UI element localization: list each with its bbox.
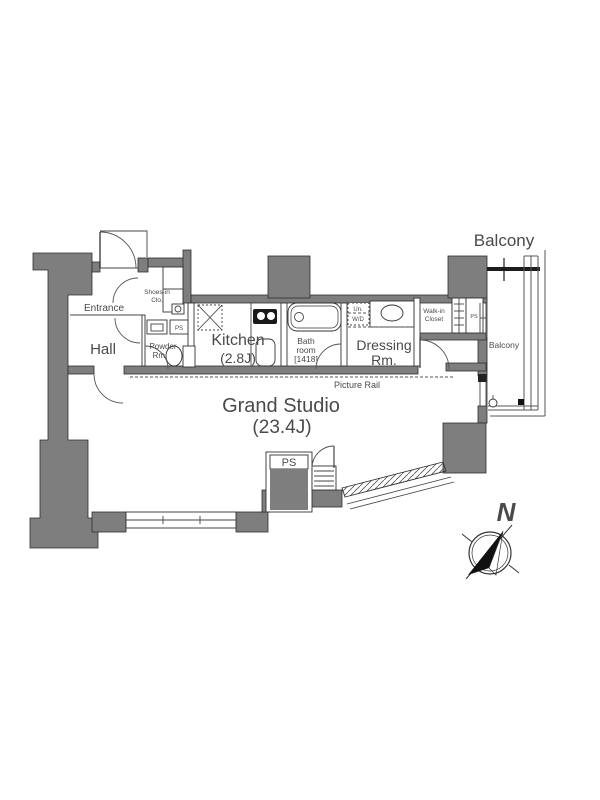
- toilet-tank-icon: [183, 346, 195, 367]
- stove-burner-right: [267, 312, 275, 320]
- right-wall-lower-stub: [478, 406, 487, 423]
- shoes-closet-label-1: Shoes-in: [144, 289, 170, 296]
- powder-room-label-1: Powder: [149, 342, 176, 351]
- water-heater-box: [172, 304, 184, 314]
- bottom-window: [126, 512, 236, 528]
- vanity-basin-icon: [381, 305, 403, 321]
- washer-dryer-label-1: Un.: [353, 307, 363, 313]
- bath-room-label-3: [1418]: [294, 354, 318, 364]
- kitchen-label-1: Kitchen: [211, 332, 264, 349]
- hall-label: Hall: [90, 341, 116, 358]
- bathtub-outer: [288, 303, 341, 331]
- powder-room-label-2: Rm.: [153, 351, 168, 360]
- dressing-room-label-2: Rm.: [371, 352, 397, 368]
- bottom-wall-right: [236, 512, 268, 532]
- balcony-title: Balcony: [474, 231, 535, 250]
- entrance-right-stub: [138, 258, 148, 272]
- hall-door-left-stub: [68, 366, 94, 374]
- picture-rail-label: Picture Rail: [334, 380, 380, 390]
- studio-label-1: Grand Studio: [222, 395, 340, 417]
- walkin-closet-bottom-wall: [418, 333, 486, 340]
- walkin-ps-label: PS: [470, 314, 478, 320]
- right-top-pillar: [448, 256, 487, 298]
- entrance-left-stub: [92, 262, 100, 272]
- compass-north-label: N: [497, 497, 517, 527]
- floor-plan-drawing: Balcony Entrance Shoes-in Clo. Hall Powd…: [0, 0, 600, 800]
- studio-label-2: (23.4J): [252, 417, 311, 438]
- balcony-drain-icon: [489, 399, 497, 407]
- corridor-top-wall: [191, 295, 487, 303]
- dressing-closet-wall: [414, 298, 420, 366]
- kitchen-label-2: (2.8J): [220, 350, 256, 366]
- powder-ps-label: PS: [175, 326, 183, 332]
- stove-burner-left: [257, 312, 265, 320]
- walkin-closet-label-1: Walk-in: [423, 308, 445, 315]
- walkin-closet-label-2: Closet: [425, 316, 444, 323]
- bottom-right-pillar: [443, 423, 486, 473]
- shoes-closet-label-2: Clo.: [151, 297, 163, 304]
- hall-powder-wall: [142, 315, 145, 366]
- entrance-label: Entrance: [84, 303, 124, 314]
- dressing-room-label-1: Dressing: [356, 337, 411, 353]
- entrance-vertical-wall: [183, 250, 191, 303]
- bottom-wall-left: [92, 512, 126, 532]
- bottom-ps-label: PS: [282, 457, 297, 469]
- right-wall-dark-pier: [478, 374, 487, 382]
- bath-dressing-wall: [341, 303, 347, 366]
- studio-top-right-stub: [446, 363, 486, 371]
- washer-dryer-label-2: W/D: [352, 317, 364, 323]
- mid-top-pillar: [268, 256, 310, 298]
- walk-in-closet-area: [452, 298, 483, 333]
- balcony-downpipe-icon: [518, 399, 524, 405]
- powder-counter: [147, 320, 167, 334]
- balcony-partition: [487, 267, 540, 271]
- balcony-side-label: Balcony: [489, 340, 520, 350]
- floor-plan-screen: Balcony Entrance Shoes-in Clo. Hall Powd…: [0, 0, 600, 800]
- kitchen-bath-wall: [281, 303, 287, 366]
- bottom-ps-shaft: [270, 469, 308, 510]
